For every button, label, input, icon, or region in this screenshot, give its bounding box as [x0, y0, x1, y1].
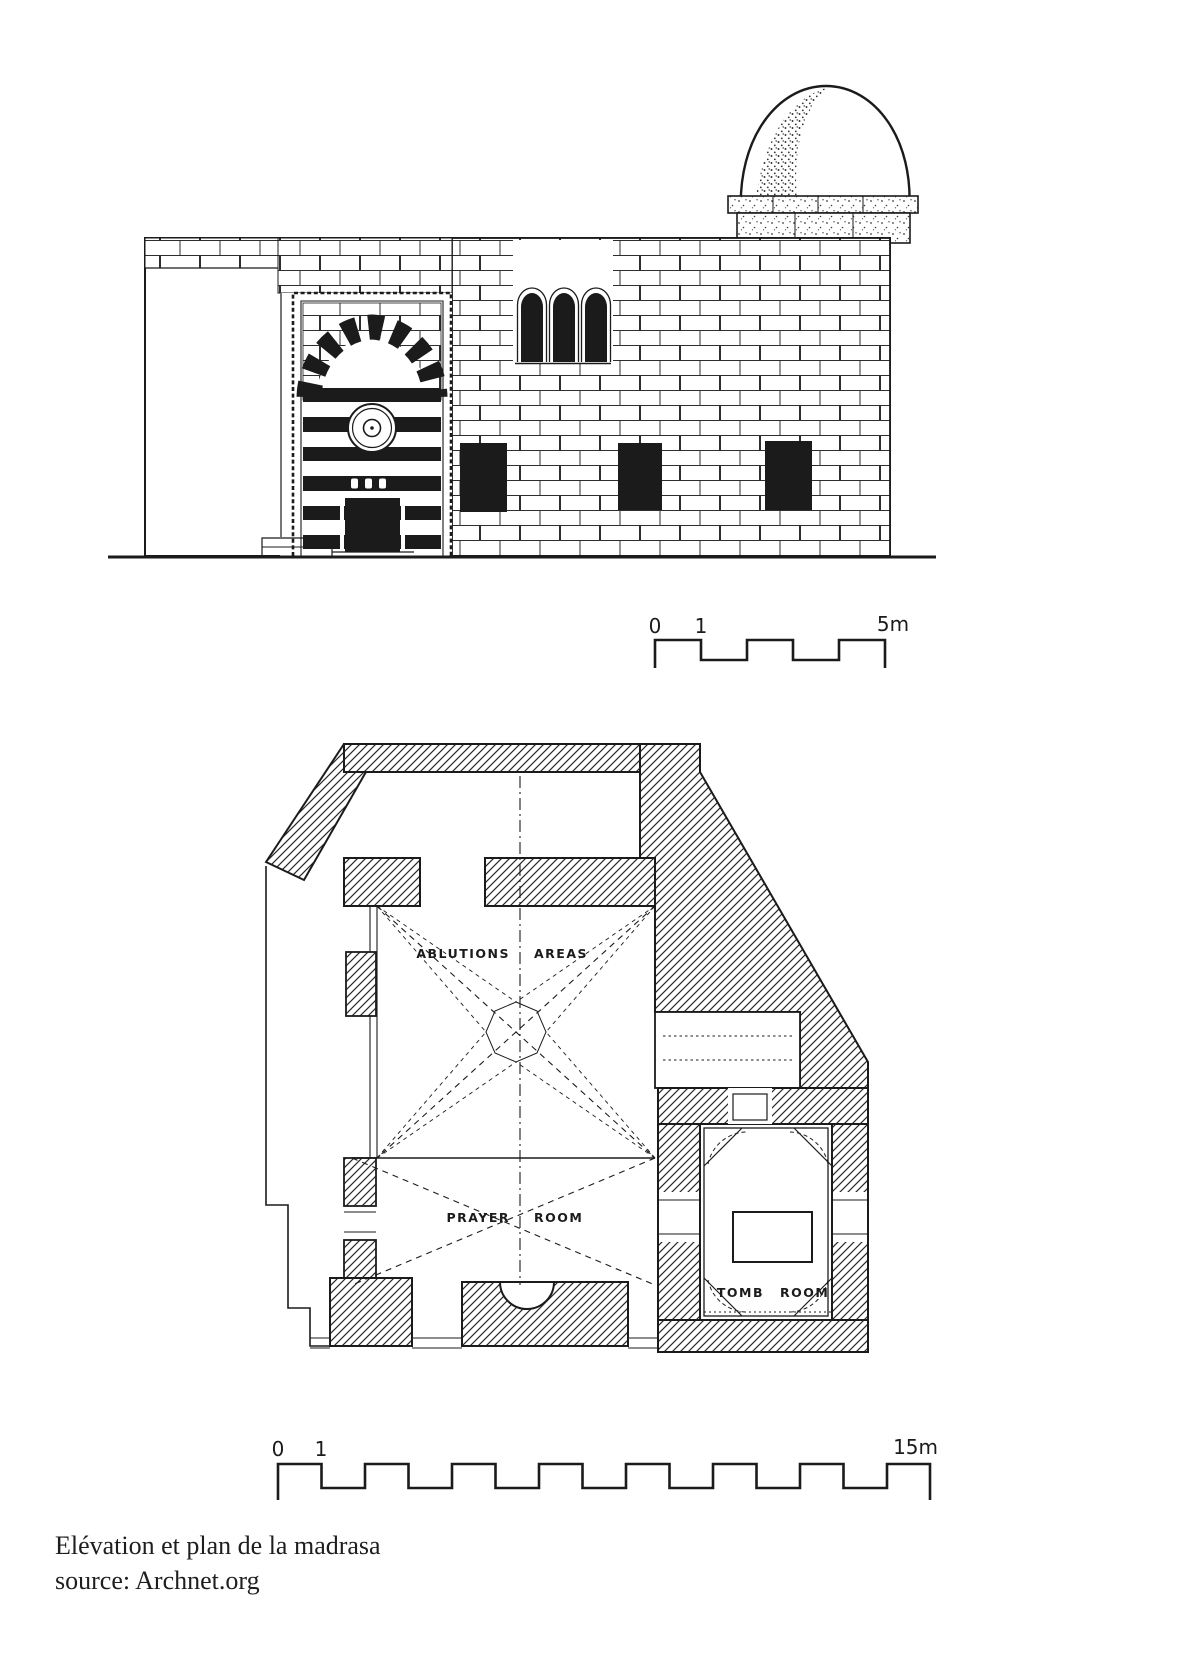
portal-medallion — [348, 404, 396, 452]
dome-shading — [754, 88, 826, 214]
band-ornament-2 — [365, 479, 372, 489]
elevation-drawing: 0 1 5m — [108, 86, 936, 668]
scale-5m-zero: 0 — [649, 614, 662, 638]
caption-line-1: Elévation et plan de la madrasa — [55, 1528, 381, 1563]
annex-room — [655, 1012, 800, 1088]
band-ornament-1 — [351, 479, 358, 489]
arch-slit-2 — [553, 293, 575, 362]
caption-line-2: source: Archnet.org — [55, 1563, 381, 1598]
tomb-room: TOMB ROOM — [658, 1088, 868, 1352]
scale-5m-one: 1 — [695, 614, 708, 638]
masonry-above-portal — [278, 238, 452, 293]
prayer-label-word1: PRAYER — [447, 1210, 510, 1225]
triple-arched-window — [513, 240, 613, 364]
prayer-west-wall-upper — [344, 1158, 376, 1206]
north-doorway-jambs — [420, 858, 485, 906]
arch-slit-3 — [585, 293, 607, 362]
architectural-drawing-sheet: 0 1 5m — [0, 0, 1178, 1654]
ablutions-label-word2: AREAS — [534, 946, 588, 961]
west-window-sills — [344, 1212, 376, 1232]
band-ornament-3 — [379, 479, 386, 489]
prayer-room: PRAYER ROOM — [352, 1158, 655, 1285]
ablutions-label-word1: ABLUTIONS — [416, 946, 510, 961]
arch-slit-1 — [521, 293, 543, 362]
window-middle — [618, 443, 662, 510]
plan-drawing: ABLUTIONS AREAS PRAYER ROOM — [266, 744, 938, 1500]
tomb-label-word1: TOMB — [717, 1285, 764, 1300]
scale-15m-one: 1 — [315, 1437, 328, 1461]
masonry-left-band — [145, 238, 278, 268]
ablutions-north-wall — [485, 858, 655, 906]
tomb-label-word2: ROOM — [780, 1285, 829, 1300]
ablutions-west-wall-lines — [370, 906, 377, 1158]
window-left — [460, 443, 507, 512]
scale-15m-end: 15m — [893, 1435, 938, 1459]
figure-caption: Elévation et plan de la madrasa source: … — [55, 1528, 381, 1598]
door-opening — [345, 498, 400, 552]
dome — [728, 86, 918, 243]
scale-bar-5m-shape — [655, 640, 885, 668]
ablutions-room: ABLUTIONS AREAS — [377, 776, 655, 1285]
tomb-south-wall — [658, 1320, 868, 1352]
elevation-scale-bar: 0 1 5m — [649, 612, 909, 668]
ablutions-west-pier — [346, 952, 376, 1016]
plan-scale-bar: 0 1 15m — [272, 1435, 938, 1500]
tomb-north-window-grill — [733, 1094, 767, 1120]
scanned-drawing-page: 0 1 5m — [0, 0, 1178, 1654]
drum-cornice — [728, 196, 918, 213]
prayer-label-word2: ROOM — [534, 1210, 583, 1225]
entrance-portal — [262, 293, 452, 556]
scale-bar-15m-shape — [278, 1464, 930, 1500]
cenotaph — [733, 1212, 812, 1262]
scale-5m-end: 5m — [877, 612, 909, 636]
southwest-pier — [330, 1278, 412, 1346]
window-right — [765, 441, 812, 510]
lot-boundary — [266, 866, 330, 1346]
ablutions-north-wall-stub — [344, 858, 420, 906]
wall-north-band — [344, 744, 640, 772]
scale-15m-zero: 0 — [272, 1437, 285, 1461]
